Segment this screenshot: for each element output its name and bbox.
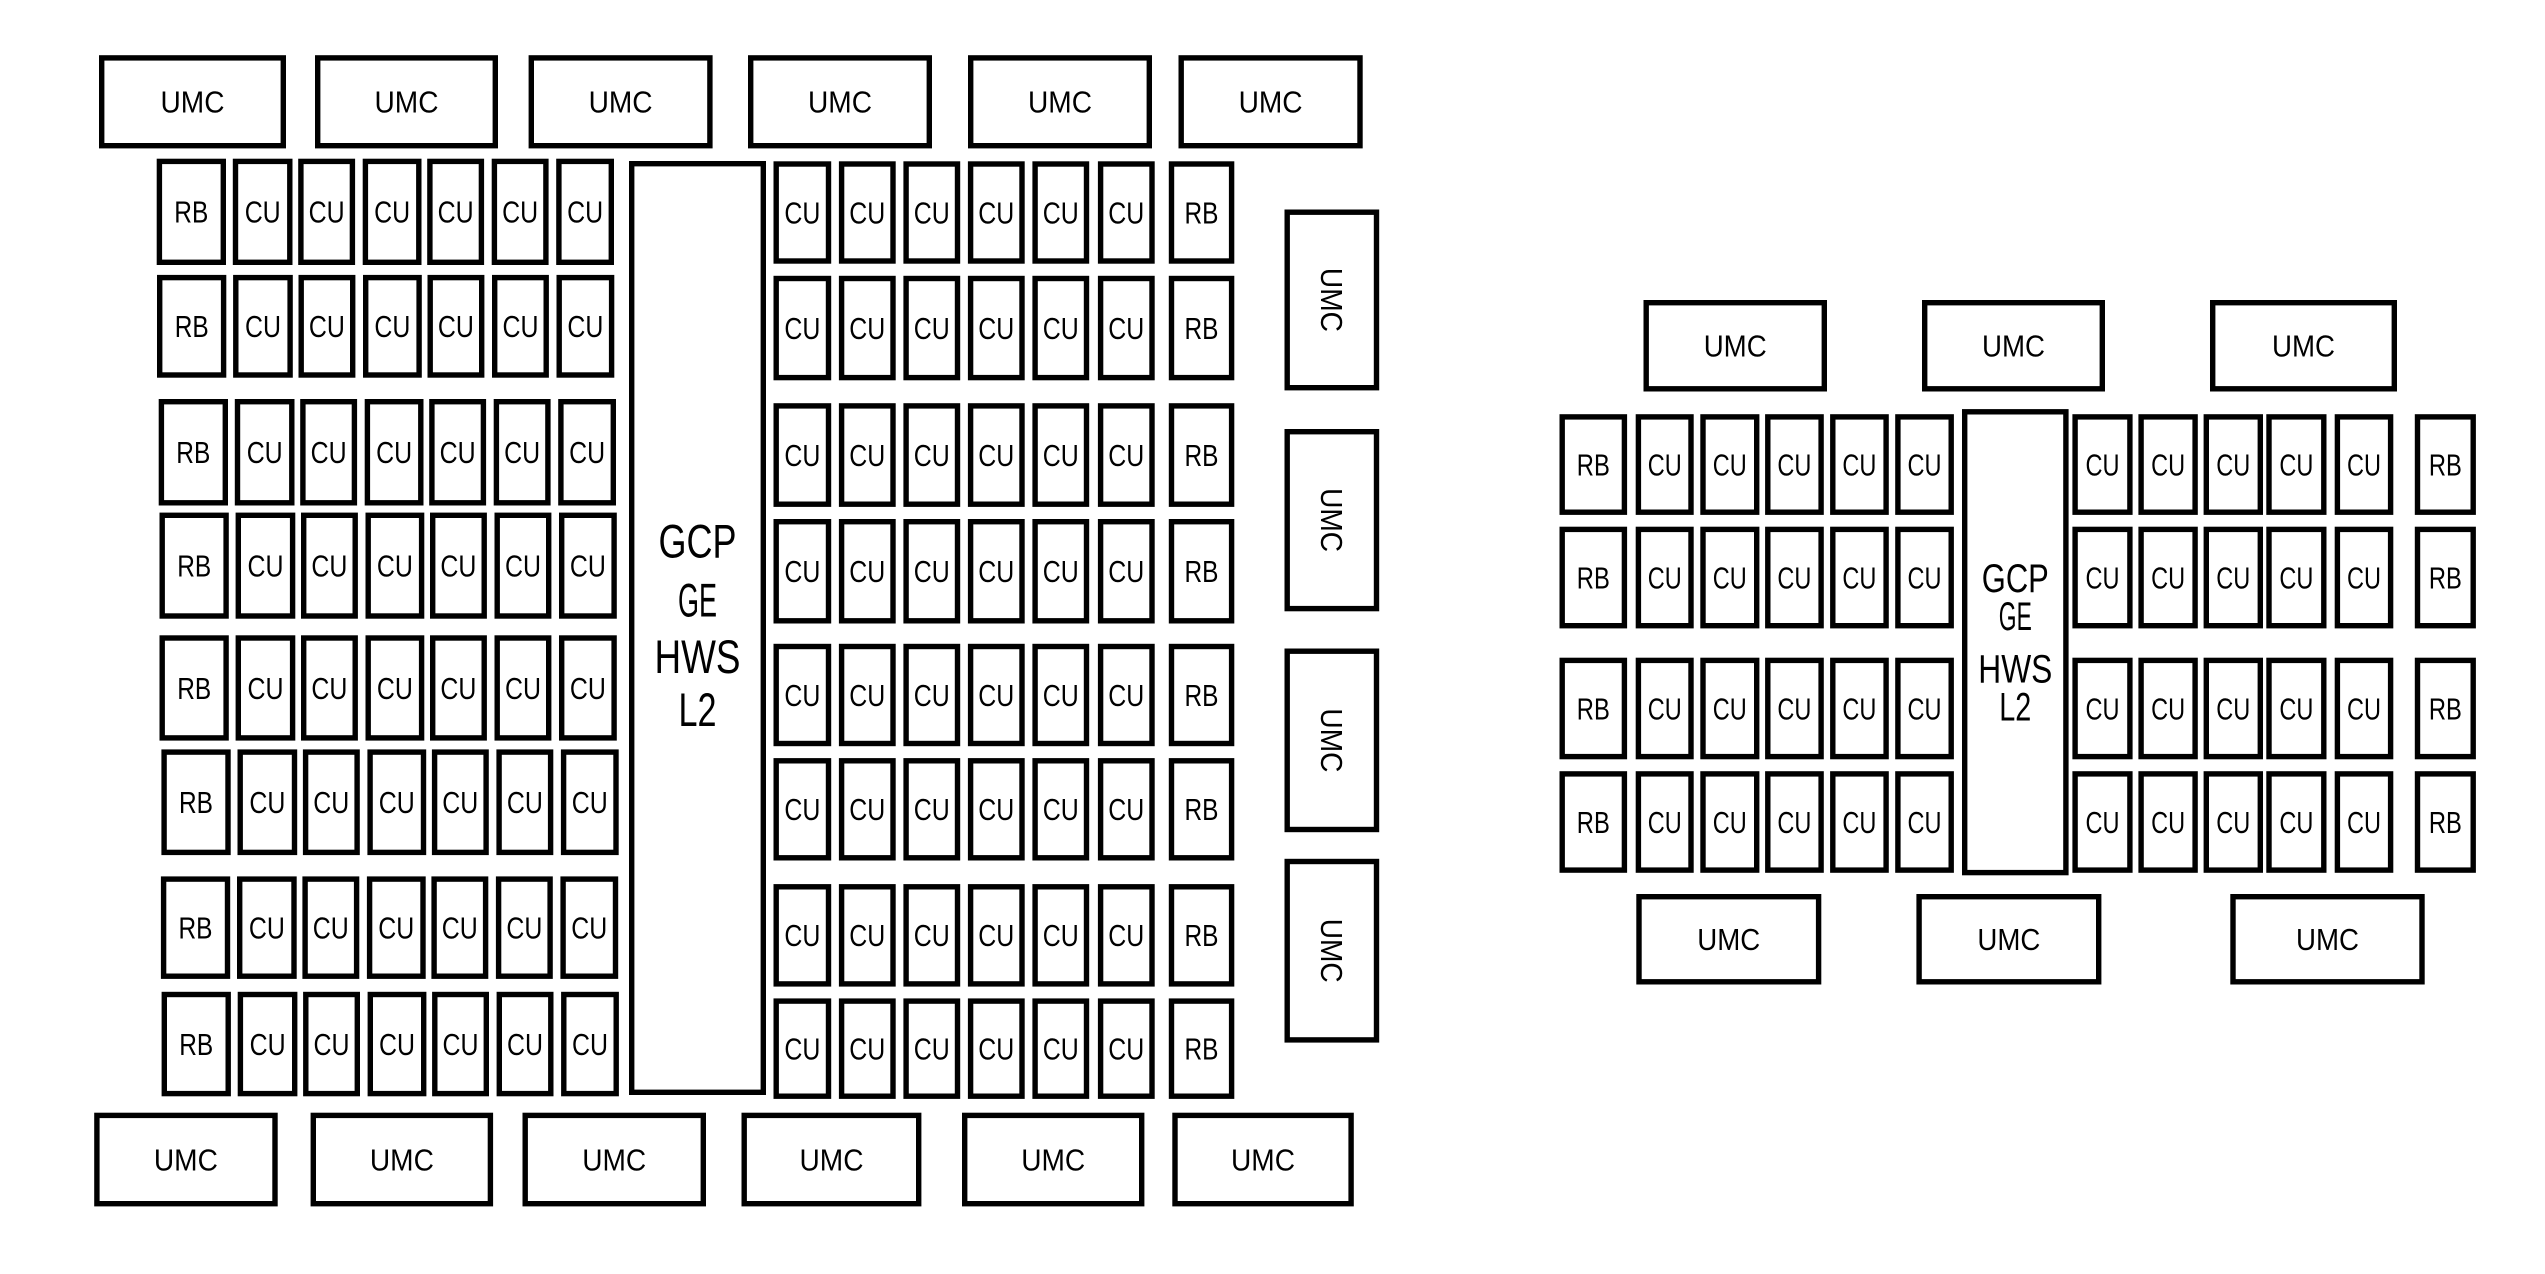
svg-text:RB: RB <box>1185 1032 1219 1067</box>
svg-text:CU: CU <box>978 1032 1014 1067</box>
svg-text:CU: CU <box>1043 554 1079 589</box>
svg-text:CU: CU <box>572 785 608 820</box>
svg-text:CU: CU <box>2151 560 2185 595</box>
svg-text:UMC: UMC <box>1982 329 2045 364</box>
svg-text:CU: CU <box>1043 1032 1079 1067</box>
svg-text:CU: CU <box>849 792 885 827</box>
svg-text:CU: CU <box>978 438 1014 473</box>
svg-text:UMC: UMC <box>1239 85 1303 120</box>
svg-text:CU: CU <box>440 549 476 584</box>
svg-text:CU: CU <box>248 549 284 584</box>
svg-text:CU: CU <box>2216 805 2250 840</box>
svg-text:CU: CU <box>2216 560 2250 595</box>
svg-text:CU: CU <box>248 671 284 706</box>
svg-text:CU: CU <box>2347 691 2381 726</box>
svg-text:CU: CU <box>2086 805 2120 840</box>
svg-text:L2: L2 <box>1999 686 2031 730</box>
svg-text:CU: CU <box>784 438 820 473</box>
svg-text:RB: RB <box>2429 691 2462 726</box>
svg-text:CU: CU <box>1908 447 1942 482</box>
svg-text:GE: GE <box>1999 595 2032 639</box>
svg-text:CU: CU <box>914 311 950 346</box>
svg-text:RB: RB <box>175 309 209 344</box>
svg-text:CU: CU <box>1043 311 1079 346</box>
svg-text:CU: CU <box>784 554 820 589</box>
svg-text:RB: RB <box>176 435 210 470</box>
svg-text:RB: RB <box>177 549 211 584</box>
svg-text:CU: CU <box>570 549 606 584</box>
svg-text:RB: RB <box>1185 792 1219 827</box>
svg-text:CU: CU <box>914 438 950 473</box>
svg-text:UMC: UMC <box>1028 85 1092 120</box>
svg-text:CU: CU <box>914 678 950 713</box>
svg-text:CU: CU <box>1777 805 1811 840</box>
svg-text:GCP: GCP <box>659 515 737 568</box>
svg-text:CU: CU <box>849 678 885 713</box>
svg-text:CU: CU <box>2151 447 2185 482</box>
svg-text:UMC: UMC <box>2296 922 2359 957</box>
svg-text:CU: CU <box>245 309 281 344</box>
svg-text:CU: CU <box>1648 805 1682 840</box>
svg-text:UMC: UMC <box>161 85 225 120</box>
svg-text:HWS: HWS <box>655 630 741 683</box>
svg-text:CU: CU <box>245 195 281 230</box>
svg-text:CU: CU <box>438 195 474 230</box>
svg-text:CU: CU <box>1842 805 1876 840</box>
svg-text:CU: CU <box>784 918 820 953</box>
svg-text:CU: CU <box>1043 678 1079 713</box>
svg-text:CU: CU <box>2347 560 2381 595</box>
svg-text:CU: CU <box>849 195 885 230</box>
svg-text:CU: CU <box>978 792 1014 827</box>
svg-text:CU: CU <box>1648 560 1682 595</box>
svg-text:CU: CU <box>978 195 1014 230</box>
svg-text:CU: CU <box>1713 691 1747 726</box>
svg-text:CU: CU <box>506 911 542 946</box>
svg-text:CU: CU <box>2347 805 2381 840</box>
svg-text:CU: CU <box>978 918 1014 953</box>
svg-text:CU: CU <box>570 671 606 706</box>
svg-text:RB: RB <box>1577 691 1610 726</box>
svg-text:CU: CU <box>1908 691 1942 726</box>
svg-text:CU: CU <box>311 671 347 706</box>
svg-text:RB: RB <box>177 671 211 706</box>
svg-text:CU: CU <box>784 678 820 713</box>
svg-text:UMC: UMC <box>800 1142 864 1177</box>
svg-text:CU: CU <box>914 918 950 953</box>
svg-text:CU: CU <box>377 549 413 584</box>
svg-text:CU: CU <box>914 1032 950 1067</box>
svg-text:CU: CU <box>2279 447 2313 482</box>
svg-text:UMC: UMC <box>808 85 872 120</box>
svg-text:CU: CU <box>442 785 478 820</box>
svg-text:CU: CU <box>1108 678 1144 713</box>
svg-text:CU: CU <box>1842 691 1876 726</box>
svg-text:CU: CU <box>2216 447 2250 482</box>
svg-text:UMC: UMC <box>589 85 653 120</box>
svg-text:UMC: UMC <box>370 1142 434 1177</box>
svg-text:RB: RB <box>1577 805 1610 840</box>
svg-text:CU: CU <box>849 554 885 589</box>
svg-text:CU: CU <box>378 911 414 946</box>
svg-text:UMC: UMC <box>154 1142 218 1177</box>
svg-text:CU: CU <box>379 785 415 820</box>
svg-text:CU: CU <box>504 435 540 470</box>
svg-text:CU: CU <box>1043 195 1079 230</box>
svg-text:CU: CU <box>567 195 603 230</box>
svg-text:CU: CU <box>569 435 605 470</box>
svg-text:CU: CU <box>572 1027 608 1062</box>
svg-text:CU: CU <box>914 554 950 589</box>
svg-text:RB: RB <box>174 195 208 230</box>
svg-text:CU: CU <box>377 671 413 706</box>
svg-text:CU: CU <box>505 671 541 706</box>
svg-text:CU: CU <box>571 911 607 946</box>
svg-text:CU: CU <box>1108 554 1144 589</box>
svg-text:CU: CU <box>374 309 410 344</box>
svg-text:CU: CU <box>249 911 285 946</box>
svg-text:GE: GE <box>678 574 717 627</box>
svg-text:RB: RB <box>2429 560 2462 595</box>
svg-text:CU: CU <box>2216 691 2250 726</box>
svg-text:CU: CU <box>1648 691 1682 726</box>
svg-text:CU: CU <box>1908 560 1942 595</box>
svg-text:UMC: UMC <box>1231 1142 1295 1177</box>
svg-text:CU: CU <box>1043 918 1079 953</box>
svg-text:CU: CU <box>313 911 349 946</box>
svg-text:RB: RB <box>1185 678 1219 713</box>
svg-text:CU: CU <box>442 911 478 946</box>
svg-text:CU: CU <box>2279 560 2313 595</box>
svg-text:UMC: UMC <box>582 1142 646 1177</box>
svg-text:CU: CU <box>247 435 283 470</box>
svg-text:UMC: UMC <box>2272 329 2335 364</box>
svg-text:CU: CU <box>507 1027 543 1062</box>
svg-text:CU: CU <box>1777 447 1811 482</box>
svg-text:CU: CU <box>311 549 347 584</box>
svg-text:CU: CU <box>1108 311 1144 346</box>
svg-text:CU: CU <box>784 792 820 827</box>
svg-text:RB: RB <box>1185 311 1219 346</box>
svg-text:CU: CU <box>311 435 347 470</box>
svg-text:UMC: UMC <box>1314 919 1349 983</box>
svg-text:CU: CU <box>1908 805 1942 840</box>
svg-text:CU: CU <box>309 309 345 344</box>
svg-text:CU: CU <box>567 309 603 344</box>
svg-text:CU: CU <box>849 918 885 953</box>
svg-text:RB: RB <box>1185 438 1219 473</box>
svg-text:CU: CU <box>1108 792 1144 827</box>
svg-text:RB: RB <box>2429 447 2462 482</box>
svg-text:UMC: UMC <box>1314 268 1349 332</box>
svg-text:CU: CU <box>1043 792 1079 827</box>
svg-text:CU: CU <box>1108 438 1144 473</box>
svg-text:CU: CU <box>1777 560 1811 595</box>
svg-text:CU: CU <box>1108 195 1144 230</box>
svg-text:UMC: UMC <box>1021 1142 1085 1177</box>
svg-text:CU: CU <box>914 195 950 230</box>
svg-text:CU: CU <box>978 554 1014 589</box>
svg-text:UMC: UMC <box>375 85 439 120</box>
svg-text:CU: CU <box>2279 691 2313 726</box>
svg-text:CU: CU <box>502 195 538 230</box>
svg-text:RB: RB <box>2429 805 2462 840</box>
svg-text:CU: CU <box>1842 560 1876 595</box>
svg-text:RB: RB <box>179 785 213 820</box>
svg-text:CU: CU <box>849 1032 885 1067</box>
svg-text:CU: CU <box>250 1027 286 1062</box>
svg-text:CU: CU <box>376 435 412 470</box>
svg-text:CU: CU <box>313 785 349 820</box>
svg-text:RB: RB <box>179 1027 213 1062</box>
svg-text:CU: CU <box>784 1032 820 1067</box>
svg-text:RB: RB <box>1185 918 1219 953</box>
svg-text:CU: CU <box>1713 560 1747 595</box>
svg-text:CU: CU <box>438 309 474 344</box>
svg-text:CU: CU <box>505 549 541 584</box>
svg-text:CU: CU <box>849 438 885 473</box>
svg-text:UMC: UMC <box>1697 922 1760 957</box>
svg-text:CU: CU <box>2086 560 2120 595</box>
svg-text:CU: CU <box>2279 805 2313 840</box>
svg-text:CU: CU <box>784 195 820 230</box>
svg-text:CU: CU <box>2086 447 2120 482</box>
svg-text:CU: CU <box>1108 918 1144 953</box>
svg-text:CU: CU <box>2347 447 2381 482</box>
svg-text:CU: CU <box>440 435 476 470</box>
svg-text:CU: CU <box>440 671 476 706</box>
svg-text:CU: CU <box>503 309 539 344</box>
svg-text:UMC: UMC <box>1977 922 2040 957</box>
svg-text:CU: CU <box>1108 1032 1144 1067</box>
svg-text:CU: CU <box>2086 691 2120 726</box>
svg-text:CU: CU <box>1648 447 1682 482</box>
svg-text:CU: CU <box>314 1027 350 1062</box>
svg-text:CU: CU <box>1842 447 1876 482</box>
svg-text:CU: CU <box>443 1027 479 1062</box>
svg-text:CU: CU <box>914 792 950 827</box>
svg-text:UMC: UMC <box>1314 708 1349 772</box>
svg-text:CU: CU <box>1713 447 1747 482</box>
svg-text:RB: RB <box>1577 447 1610 482</box>
svg-text:RB: RB <box>1185 554 1219 589</box>
svg-text:CU: CU <box>849 311 885 346</box>
svg-text:CU: CU <box>249 785 285 820</box>
svg-text:UMC: UMC <box>1704 329 1767 364</box>
svg-text:RB: RB <box>1185 195 1219 230</box>
svg-text:CU: CU <box>2151 805 2185 840</box>
svg-text:CU: CU <box>374 195 410 230</box>
svg-text:RB: RB <box>1577 560 1610 595</box>
svg-text:CU: CU <box>1043 438 1079 473</box>
svg-text:CU: CU <box>379 1027 415 1062</box>
svg-text:CU: CU <box>1777 691 1811 726</box>
svg-text:CU: CU <box>2151 691 2185 726</box>
svg-text:UMC: UMC <box>1314 488 1349 552</box>
svg-text:CU: CU <box>978 311 1014 346</box>
svg-text:CU: CU <box>507 785 543 820</box>
svg-text:CU: CU <box>978 678 1014 713</box>
svg-text:CU: CU <box>1713 805 1747 840</box>
svg-text:CU: CU <box>309 195 345 230</box>
svg-text:CU: CU <box>784 311 820 346</box>
svg-text:L2: L2 <box>679 683 717 736</box>
svg-text:RB: RB <box>179 911 213 946</box>
